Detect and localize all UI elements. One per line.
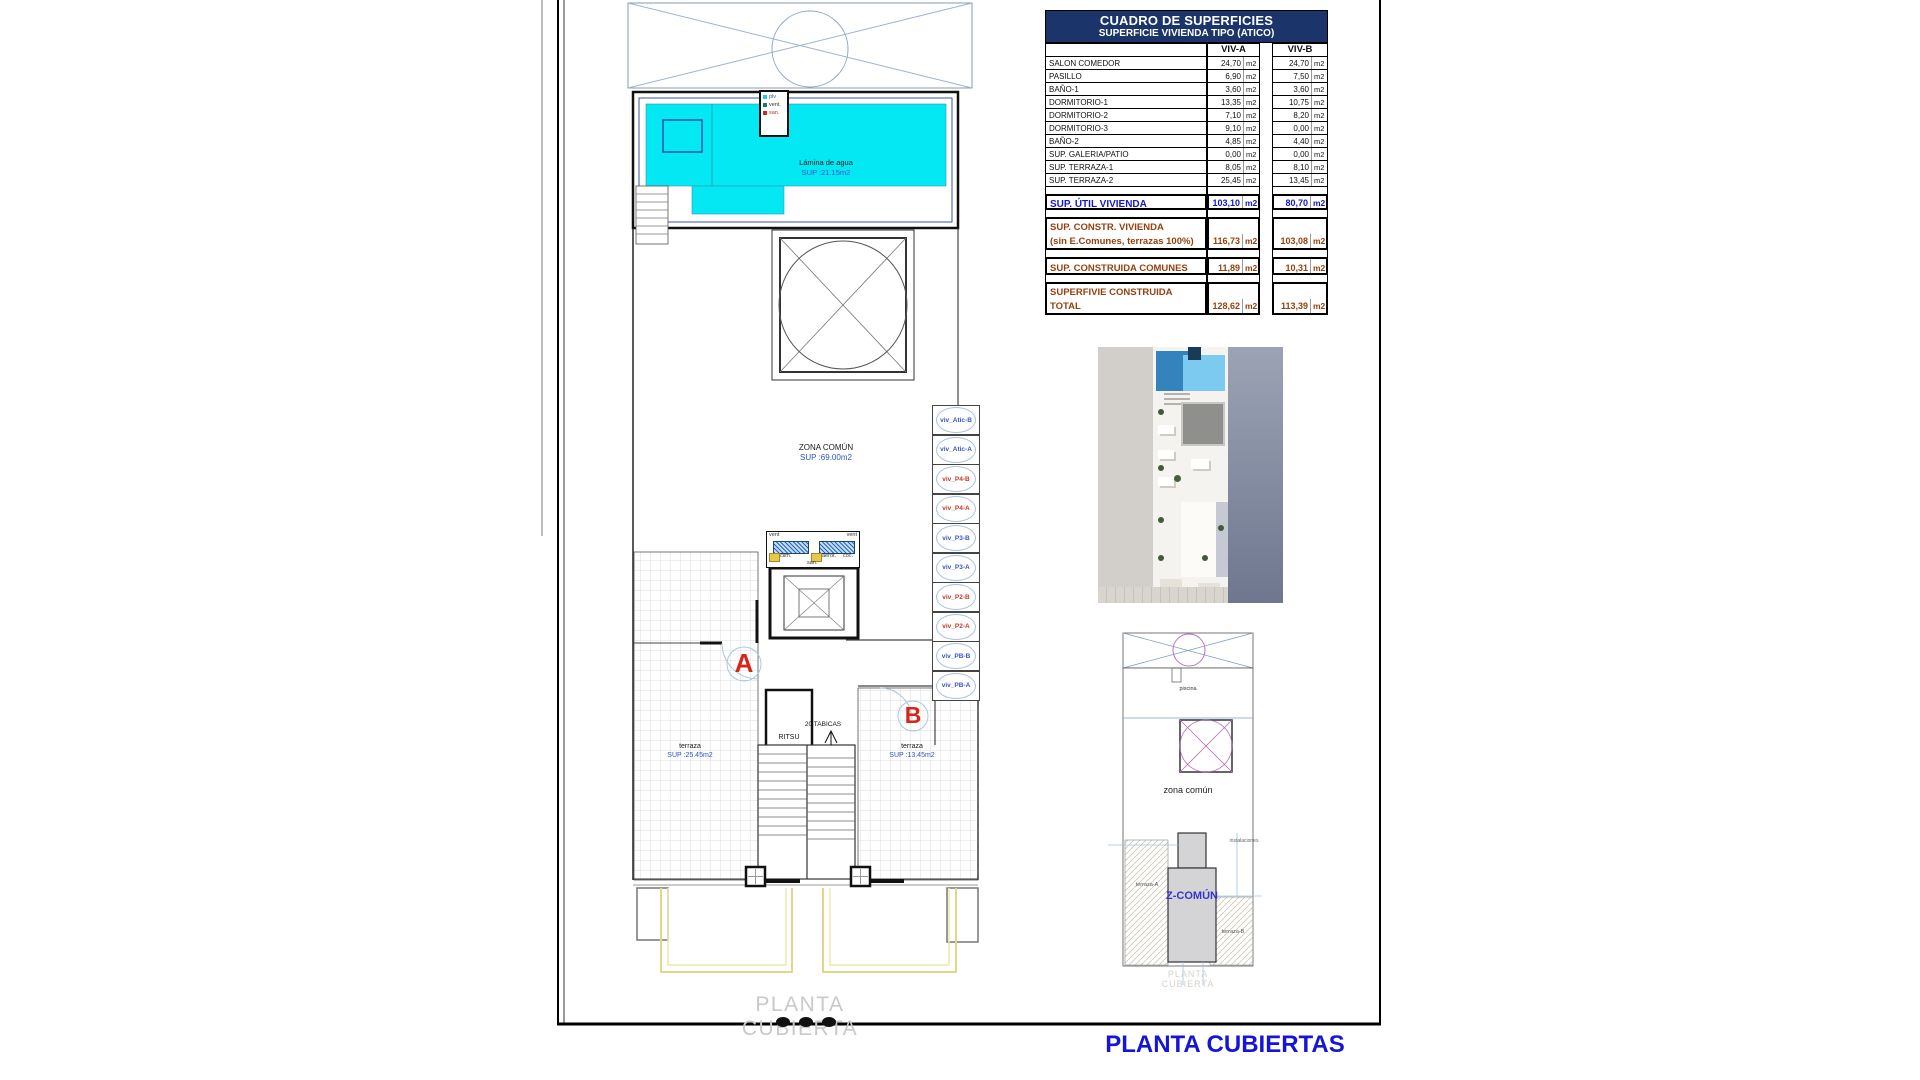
siteplan-terraza-b-label: terraza-B xyxy=(1212,929,1254,935)
vent-label: viv_PB-B xyxy=(933,642,979,670)
table-row: PASILLO6,90m27,50m2 xyxy=(1045,69,1328,83)
vent-label: viv_P3-A xyxy=(933,554,979,582)
terraza-area: SUP :13.45m2 xyxy=(862,751,962,760)
vent-label: viv_P4-A xyxy=(933,495,979,523)
siteplan-caption: PLANTA CUBIERTA xyxy=(1140,970,1236,990)
aerot-label: aerot. xyxy=(822,554,836,560)
table-row: BAÑO-13,60m23,60m2 xyxy=(1045,82,1328,96)
vent-cell: viv_PB-B xyxy=(932,641,980,671)
vent-label: viv_P2-B xyxy=(933,583,979,611)
col-b-header: VIV-B xyxy=(1272,43,1328,57)
san-label: san. xyxy=(807,561,817,567)
lower-balconies xyxy=(637,867,978,972)
summary-constr: SUP. CONSTR. VIVIENDA (sin E.Comunes, te… xyxy=(1045,217,1328,250)
summary-total: SUPERFIVIE CONSTRUIDA TOTAL 128,62m2 113… xyxy=(1045,282,1328,315)
vent-cell: viv_P4-B xyxy=(932,464,980,494)
render-shadow-band xyxy=(1223,347,1283,603)
table-col-header: VIV-A VIV-B xyxy=(1045,42,1328,57)
legend-row: vent. xyxy=(763,103,786,109)
legend-label: plv xyxy=(769,95,776,101)
table-title: CUADRO DE SUPERFICIES xyxy=(1046,13,1327,28)
table-row: SUP. GALERIA/PATIO0,00m20,00m2 xyxy=(1045,147,1328,161)
render-pavement xyxy=(1098,587,1228,603)
legend-row: plv xyxy=(763,95,786,101)
scale-mark xyxy=(822,1017,836,1027)
pool-area: SUP :21.15m2 xyxy=(776,168,876,178)
render-pool-edge xyxy=(1188,347,1201,360)
stairs-main xyxy=(758,731,855,879)
marker-a: A xyxy=(731,648,757,679)
marker-b: B xyxy=(901,702,925,729)
skylight xyxy=(772,230,914,380)
siteplan-terraza-a-label: terraza-A xyxy=(1126,882,1168,888)
stair-top-left xyxy=(636,186,668,244)
siteplan-zona-label: zona común xyxy=(1138,786,1238,796)
vent-cell: viv_Atic-A xyxy=(932,435,980,465)
pool-label: Lámina de agua SUP :21.15m2 xyxy=(776,158,876,178)
vent-label: viv_P4-B xyxy=(933,465,979,493)
render-plant xyxy=(1174,475,1181,482)
table-row: SUP. TERRAZA-225,45m213,45m2 xyxy=(1045,173,1328,187)
vent-cell: viv_P2-B xyxy=(932,582,980,612)
vent-label: viv_Atic-B xyxy=(933,406,979,434)
render-tower xyxy=(1181,502,1216,577)
vent-label: viv_P2-A xyxy=(933,613,979,641)
vent-label: viv_P3-B xyxy=(933,524,979,552)
table-row: DORMITORIO-113,35m210,75m2 xyxy=(1045,95,1328,109)
render-3d xyxy=(1098,347,1283,603)
zona-comun-label: ZONA COMÚN SUP :69.00m2 xyxy=(776,443,876,464)
terraza-b-label: terraza SUP :13.45m2 xyxy=(862,742,962,760)
table-row: DORMITORIO-27,10m28,20m2 xyxy=(1045,108,1328,122)
vent-cell: viv_P4-A xyxy=(932,494,980,524)
vent-tag: vent xyxy=(847,533,857,539)
render-plant xyxy=(1158,555,1164,561)
table-subtitle: SUPERFICIE VIVIENDA TIPO (ATICO) xyxy=(1046,28,1327,39)
vent-cell: viv_P2-A xyxy=(932,612,980,642)
summary-comunes: SUP. CONSTRUIDA COMUNES 11,89m2 10,31m2 xyxy=(1045,257,1328,275)
terraza-a-label: terraza SUP :25.45m2 xyxy=(640,742,740,760)
tabicas-label: 20 TABICAS xyxy=(788,721,858,728)
table-row: SUP. TERRAZA-18,05m28,10m2 xyxy=(1045,160,1328,174)
zona-name: ZONA COMÚN xyxy=(776,443,876,453)
legend-label: san. xyxy=(769,111,779,117)
render-plant xyxy=(1158,409,1164,415)
sheet-caption: PLANTA CUBIERTA xyxy=(695,993,905,1041)
scale-mark xyxy=(799,1017,813,1027)
vent-cell: viv_P3-B xyxy=(932,523,980,553)
vent-label: viv_PB-A xyxy=(933,672,979,700)
terraza-name: terraza xyxy=(640,742,740,751)
zona-area: SUP :69.00m2 xyxy=(776,453,876,463)
pool-legend: plv vent. san. xyxy=(759,90,789,137)
render-plant xyxy=(1202,555,1208,561)
pool-name: Lámina de agua xyxy=(776,158,876,168)
vent-tag: vent xyxy=(769,533,779,539)
terraza-name: terraza xyxy=(862,742,962,751)
aerot-block xyxy=(769,553,780,562)
table-header: CUADRO DE SUPERFICIES SUPERFICIE VIVIEND… xyxy=(1045,10,1328,43)
summary-util: SUP. ÚTIL VIVIENDA 103,10m2 80,70m2 xyxy=(1045,194,1328,210)
drawing-sheet: viv_Atic-B viv_Atic-A viv_P4-B viv_P4-A … xyxy=(0,0,1920,1080)
ritsu-label: RITSU xyxy=(768,734,810,741)
vent-label: viv_Atic-A xyxy=(933,436,979,464)
legend-swatch xyxy=(763,95,767,99)
surfaces-table: CUADRO DE SUPERFICIES SUPERFICIE VIVIEND… xyxy=(1045,10,1328,315)
siteplan-piscina-label: piscina xyxy=(1158,686,1218,692)
table-row: SALON COMEDOR24,70m224,70m2 xyxy=(1045,56,1328,70)
page-title: PLANTA CUBIERTAS xyxy=(1095,1031,1355,1059)
coc-label: coc. xyxy=(843,554,853,560)
render-plant xyxy=(1218,525,1224,531)
pergola xyxy=(628,3,972,88)
vent-cell: viv_P3-A xyxy=(932,553,980,583)
col-a-header: VIV-A xyxy=(1207,43,1260,57)
terraza-area: SUP :25.45m2 xyxy=(640,751,740,760)
roof-installations-strip: vent vent clim. aerot. coc. san. xyxy=(766,531,860,568)
render-skylight xyxy=(1181,402,1225,446)
clim-label: clim. xyxy=(780,554,791,560)
legend-swatch xyxy=(763,103,767,107)
render-plant xyxy=(1158,465,1164,471)
legend-row: san. xyxy=(763,111,786,117)
table-row: BAÑO-24,85m24,40m2 xyxy=(1045,134,1328,148)
vent-cell: viv_PB-A xyxy=(932,671,980,701)
legend-swatch xyxy=(763,111,767,115)
render-pool-light xyxy=(1183,355,1225,391)
vent-cell: viv_Atic-B xyxy=(932,405,980,435)
siteplan-instalaciones-label: instalaciones xyxy=(1222,839,1266,845)
siteplan-zcomun-label: Z-COMÚN xyxy=(1152,890,1232,902)
render-plant xyxy=(1158,517,1164,523)
legend-label: vent. xyxy=(769,103,781,109)
scale-mark xyxy=(776,1017,790,1027)
table-row: DORMITORIO-39,10m20,00m2 xyxy=(1045,121,1328,135)
